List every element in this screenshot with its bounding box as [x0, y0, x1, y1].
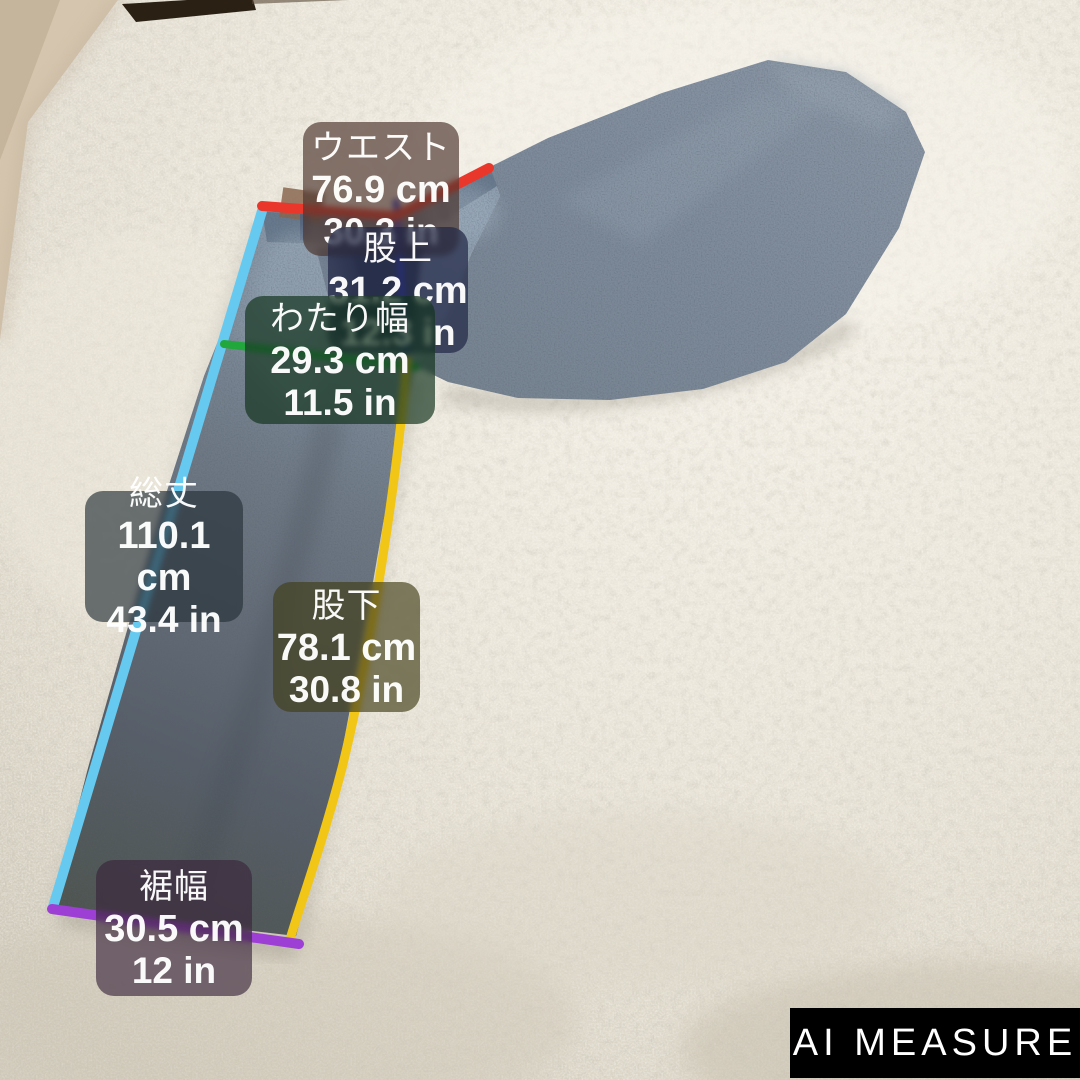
measurement-value-in: 30.8 in	[289, 669, 404, 710]
measurement-value-in: 11.5 in	[283, 382, 396, 423]
ai-measure-watermark: AI MEASURE	[790, 1008, 1080, 1078]
measurement-name: 総丈	[129, 473, 199, 515]
measurement-name: わたり幅	[270, 298, 410, 340]
measurement-label-inseam: 股下 78.1 cm 30.8 in	[273, 582, 420, 712]
measurement-name: 裾幅	[139, 866, 209, 908]
measurement-name: 股上	[363, 228, 433, 270]
measurement-value-in: 12 in	[132, 950, 216, 991]
measurement-name: 股下	[312, 585, 382, 627]
measurement-value-cm: 110.1 cm	[85, 515, 243, 599]
measurement-value-in: 43.4 in	[106, 599, 221, 640]
measurement-name: ウエスト	[311, 127, 451, 169]
measurement-value-cm: 76.9 cm	[311, 169, 450, 211]
measurement-label-thigh-width: わたり幅 29.3 cm 11.5 in	[245, 296, 435, 424]
measurement-value-cm: 78.1 cm	[277, 627, 416, 669]
measurement-value-cm: 30.5 cm	[104, 908, 243, 950]
measurement-label-total-length: 総丈 110.1 cm 43.4 in	[85, 491, 243, 622]
measurement-label-hem-width: 裾幅 30.5 cm 12 in	[96, 860, 252, 996]
ai-measure-screenshot: ウエスト 76.9 cm 30.3 in 股上 31.2 cm 12.3 in …	[0, 0, 1080, 1080]
measurement-value-cm: 29.3 cm	[270, 340, 409, 382]
